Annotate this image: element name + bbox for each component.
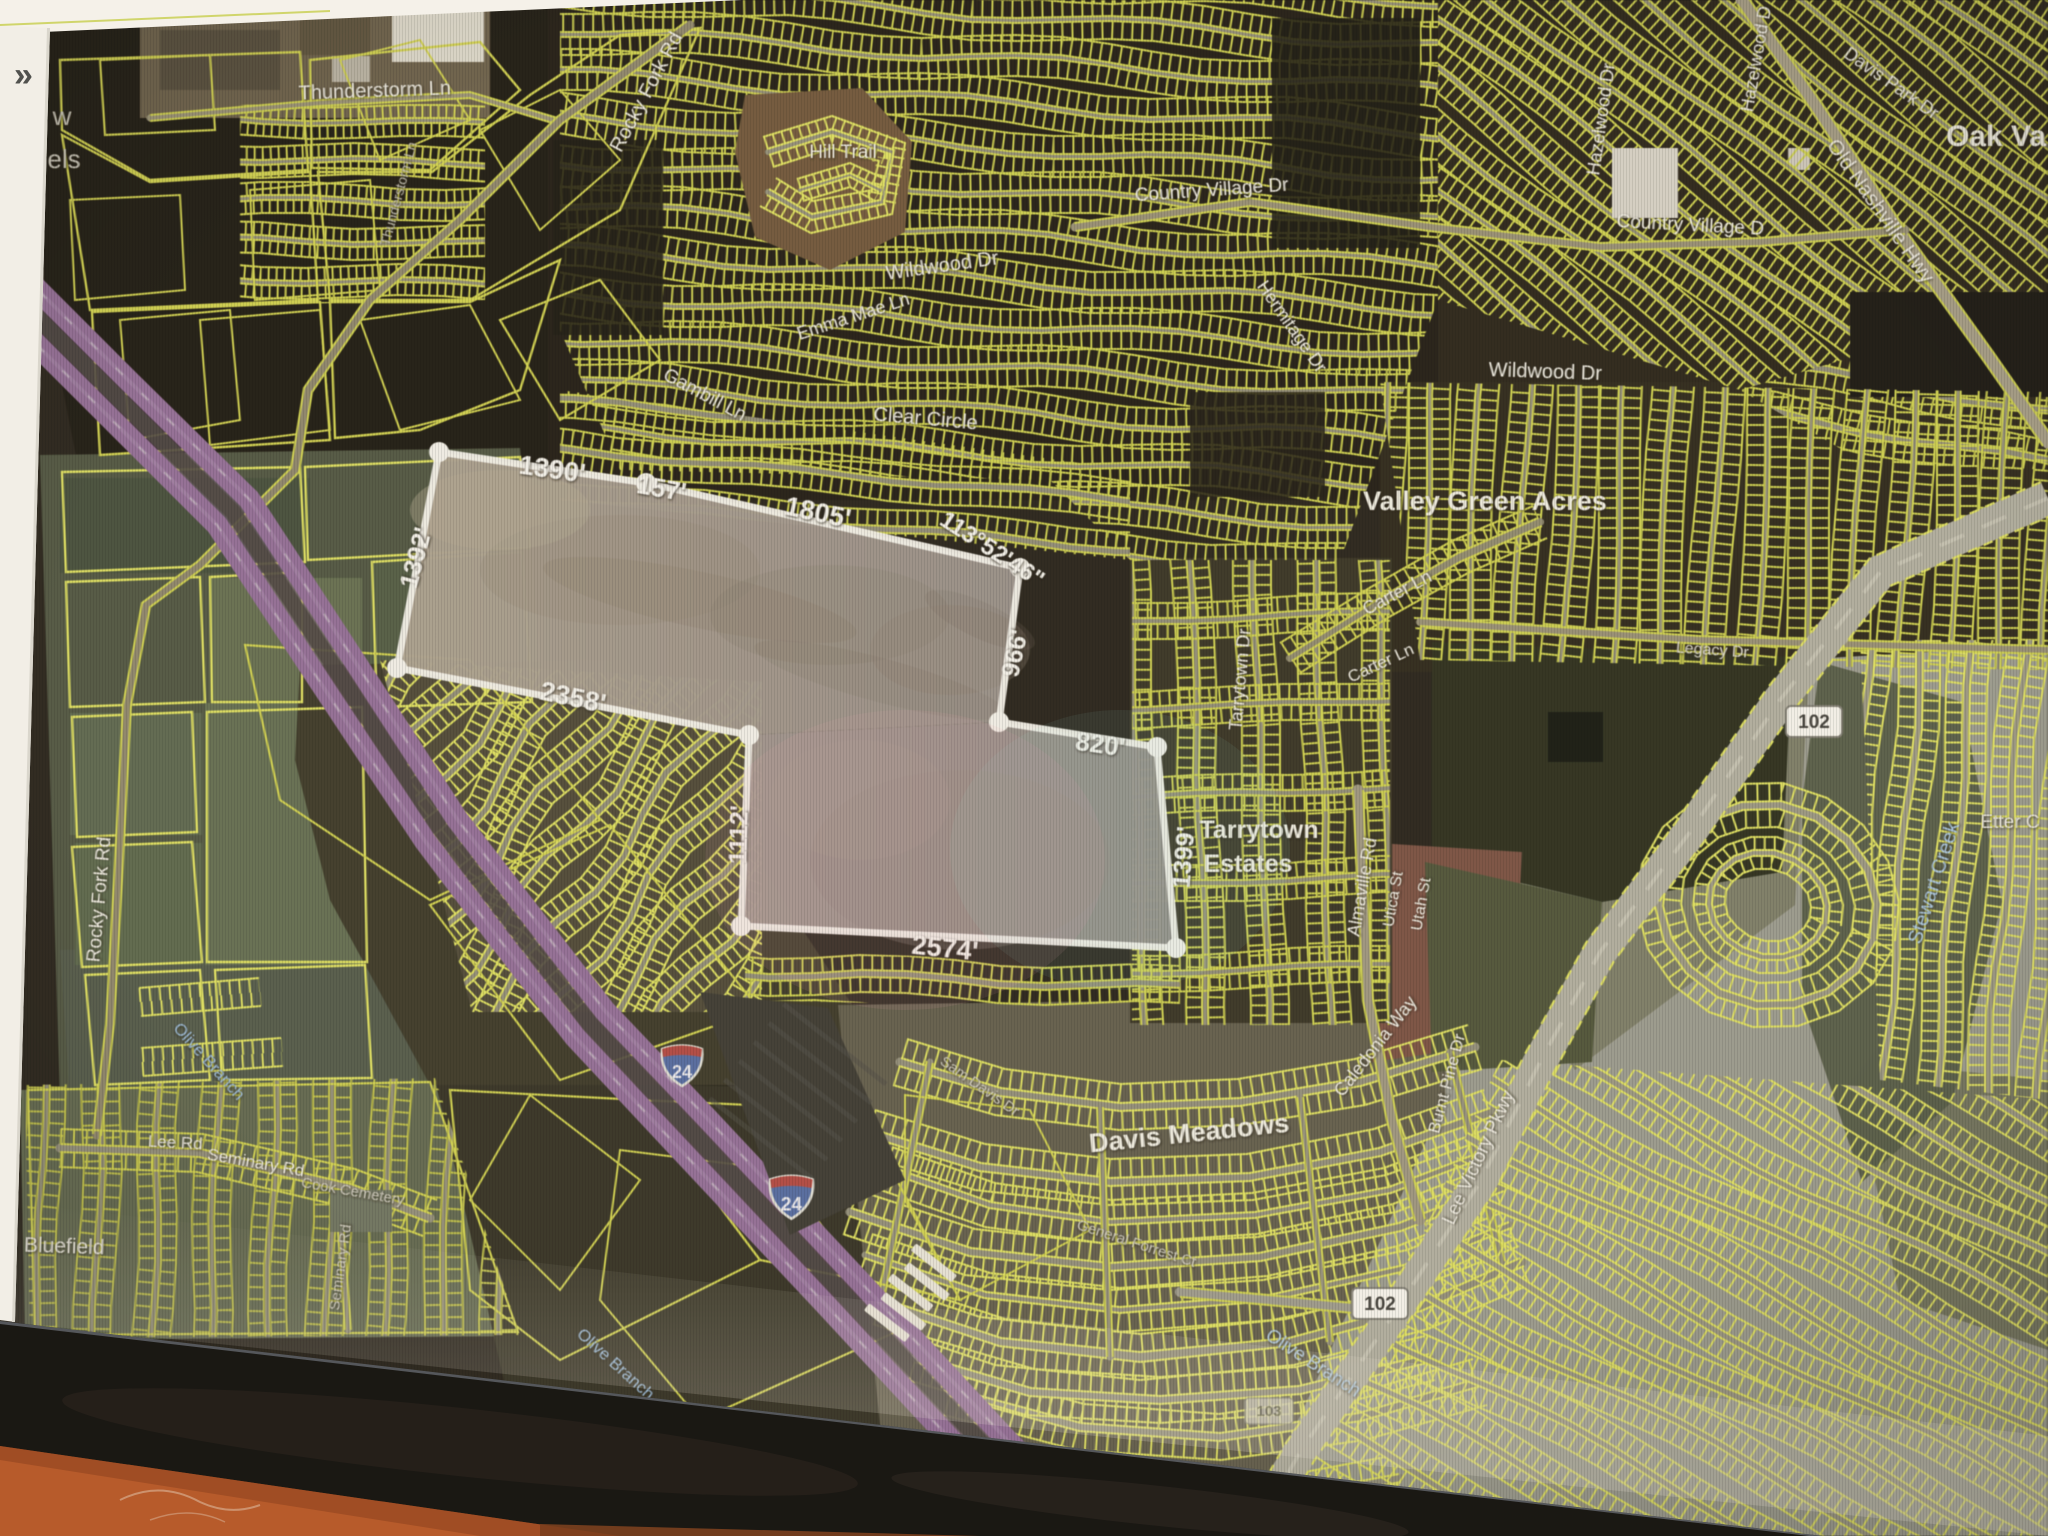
svg-text:»: » <box>14 56 33 94</box>
